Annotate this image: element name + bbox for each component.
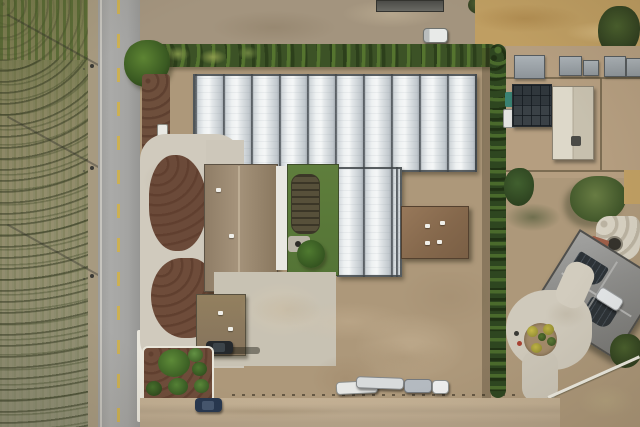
storage-shed [626, 58, 640, 77]
dry-strip-east [624, 170, 640, 204]
bush [192, 362, 207, 376]
workshop-vent [437, 240, 442, 244]
patio-chair-dot [517, 341, 522, 346]
white-barn-roof [552, 86, 594, 160]
white-box-truck [423, 28, 448, 43]
island-tree-gold [531, 343, 542, 353]
guest-roof-vent [218, 311, 223, 315]
workshop-roof [401, 206, 469, 259]
greenhouse-strip-south [337, 167, 402, 277]
hedge-row-north [128, 44, 498, 67]
road-center-line [117, 0, 120, 427]
fence-line-south [232, 394, 522, 396]
bush [168, 378, 188, 395]
utility-pole [90, 274, 94, 278]
solar-barn-roof [512, 84, 552, 127]
garden-plot [291, 174, 320, 234]
crop-field-plant-dots [0, 0, 98, 427]
roof-vent [216, 188, 221, 192]
workshop-vent [440, 221, 445, 225]
patio-chair-dot [514, 331, 519, 336]
road-edge-line [100, 0, 102, 427]
paddock-fence [600, 78, 602, 170]
island-tree-green [538, 333, 546, 341]
cypress-hedge-east [490, 44, 506, 398]
orchard-top-left [0, 0, 98, 60]
navy-car-roof [202, 401, 214, 410]
backyard-round-tree [297, 240, 325, 268]
bush [146, 381, 162, 396]
storage-shed [604, 56, 626, 77]
storage-shed [583, 60, 599, 76]
bush [194, 379, 209, 393]
mulch-island-north [149, 155, 207, 251]
island-tree-green [547, 337, 556, 346]
walkway-white [276, 166, 287, 270]
trailer [356, 376, 404, 390]
main-house-ridge [238, 166, 240, 288]
aerial-photo [0, 0, 640, 427]
workshop-vent [425, 241, 430, 245]
barn-vent [571, 136, 581, 146]
trailer [404, 379, 432, 393]
farm-building-roof [376, 0, 444, 12]
bush [158, 349, 190, 377]
utility-pole [90, 64, 94, 68]
black-car-roof [213, 343, 225, 352]
trailer [432, 380, 449, 394]
workshop-vent [425, 224, 430, 228]
bush [188, 348, 203, 362]
utility-pole [90, 166, 94, 170]
storage-shed [559, 56, 582, 76]
skylight [229, 234, 234, 238]
island-tree-gold [527, 326, 538, 337]
storage-shed [514, 55, 545, 79]
dirt-track-marks [250, 290, 470, 380]
